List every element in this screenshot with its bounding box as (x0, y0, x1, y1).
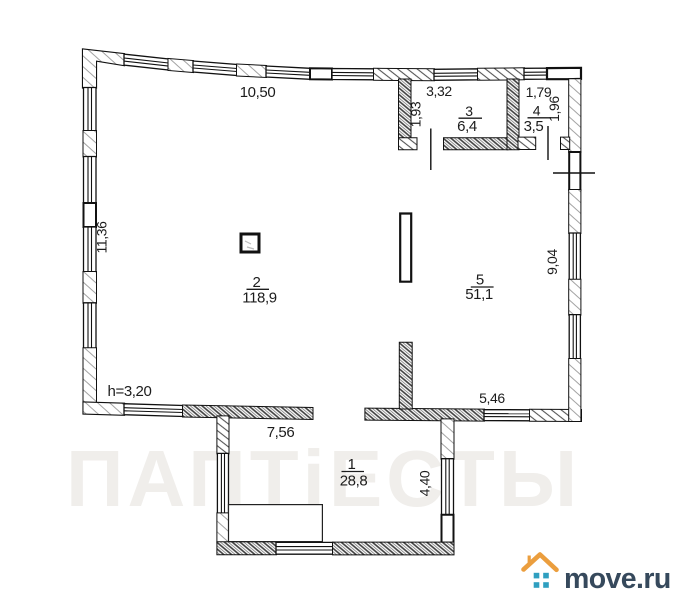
svg-text:6,4: 6,4 (457, 118, 477, 135)
svg-text:3,5: 3,5 (524, 118, 544, 135)
svg-text:3: 3 (465, 103, 473, 119)
svg-text:11,36: 11,36 (94, 221, 110, 254)
svg-text:4,40: 4,40 (417, 470, 433, 496)
svg-text:28,8: 28,8 (340, 473, 368, 490)
svg-text:ПАПТіЕСТЫ: ПАПТіЕСТЫ (66, 434, 581, 523)
svg-text:10,50: 10,50 (240, 84, 276, 101)
svg-text:move.ru: move.ru (564, 563, 671, 595)
svg-text:1,93: 1,93 (408, 101, 424, 127)
svg-text:51,1: 51,1 (465, 286, 493, 303)
svg-text:5,46: 5,46 (479, 390, 505, 406)
svg-text:2: 2 (253, 274, 261, 291)
svg-text:118,9: 118,9 (242, 290, 276, 307)
svg-text:9,04: 9,04 (544, 249, 560, 275)
svg-text:h=3,20: h=3,20 (108, 383, 152, 400)
svg-text:7,56: 7,56 (267, 424, 295, 441)
svg-text:4: 4 (533, 103, 541, 119)
svg-text:3,32: 3,32 (426, 83, 452, 99)
svg-text:1: 1 (348, 456, 356, 473)
